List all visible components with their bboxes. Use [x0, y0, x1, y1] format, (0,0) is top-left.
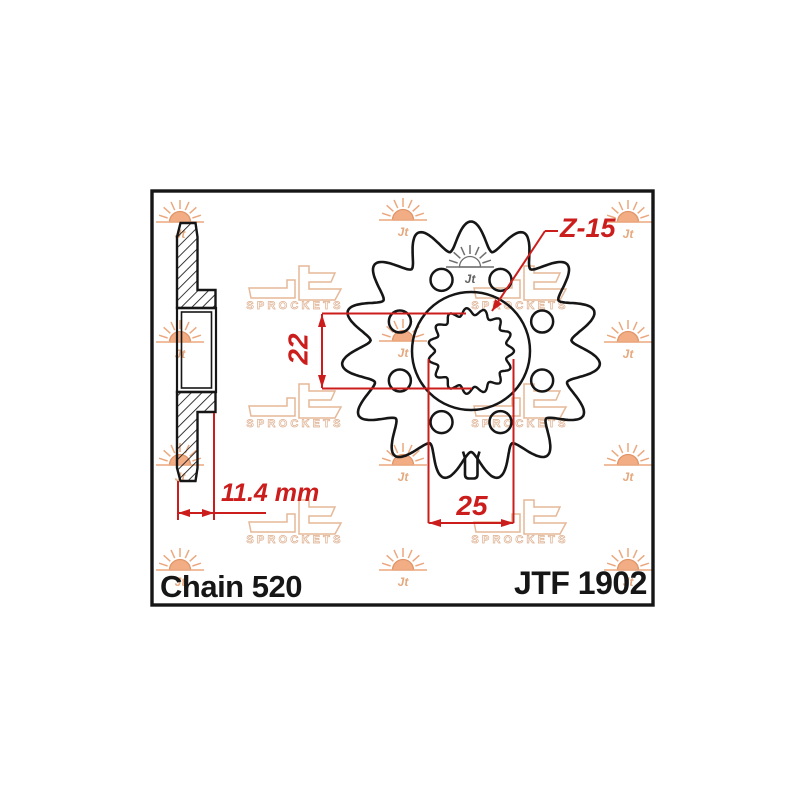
sunrise-icon: Jt [379, 319, 427, 360]
jt-sprockets-logo-watermark: SPROCKETS [246, 266, 343, 312]
part-number-label: JTF 1902 [514, 567, 647, 599]
lightening-hole [431, 411, 453, 433]
jt-mini-mark: Jt [398, 470, 410, 484]
spline-diameter-dimension-label: 25 [452, 492, 492, 520]
sunrise-icon: Jt [379, 548, 427, 589]
jt-sprockets-logo-watermark: SPROCKETS [471, 266, 568, 312]
jt-mini-mark: Jt [623, 347, 635, 361]
dimension-arrowhead [318, 375, 326, 388]
side-view-bore-inner [182, 312, 212, 388]
side-view-lower-plate [177, 392, 216, 481]
jt-mini-mark: Jt [623, 470, 635, 484]
width-dimension-label: 11.4 mm [221, 481, 319, 506]
jt-sprockets-logo-watermark: SPROCKETS [246, 384, 343, 430]
teeth-count-label: Z-15 [560, 215, 616, 242]
sprockets-text-watermark: SPROCKETS [471, 534, 568, 546]
jt-mini-mark: Jt [465, 272, 477, 286]
sprockets-text-watermark: SPROCKETS [246, 534, 343, 546]
technical-drawing: JtJtJtJtJtJtJtJtJtJtJtJtSPROCKETSSPROCKE… [0, 0, 800, 800]
spline-bore-outline [429, 308, 514, 394]
jt-mini-mark: Jt [398, 575, 410, 589]
sprocket-front-view [342, 222, 600, 479]
dimension-arrowhead [318, 314, 326, 327]
sprockets-text-watermark: SPROCKETS [246, 300, 343, 312]
lightening-hole [531, 369, 553, 391]
jt-mini-mark: Jt [398, 225, 410, 239]
bore-diameter-dimension-label: 22 [285, 333, 313, 364]
lightening-hole [531, 311, 553, 333]
bottom-valley-notch [463, 452, 480, 479]
sunrise-icon: Jt [156, 320, 204, 361]
dimension-arrowhead [429, 519, 442, 527]
sprockets-text-watermark: SPROCKETS [471, 418, 568, 430]
jt-mini-mark: Jt [623, 227, 635, 241]
chain-size-label: Chain 520 [160, 571, 302, 602]
sprocket-catalog-image: JtJtJtJtJtJtJtJtJtJtJtJtSPROCKETSSPROCKE… [0, 0, 800, 800]
jt-mini-mark: Jt [398, 346, 410, 360]
sunrise-icon: Jt [604, 443, 652, 484]
lightening-hole [431, 269, 453, 291]
dimension-arrowhead [202, 509, 214, 517]
gear-teeth-outline [342, 222, 600, 478]
dimension-line [492, 231, 545, 311]
sprockets-text-watermark: SPROCKETS [246, 418, 343, 430]
sunrise-icon: Jt [604, 320, 652, 361]
side-view-upper-plate [177, 223, 216, 308]
watermark-layer: JtJtJtJtJtJtJtJtJtJtJtJtSPROCKETSSPROCKE… [156, 198, 652, 589]
dimension-arrowhead [178, 509, 190, 517]
